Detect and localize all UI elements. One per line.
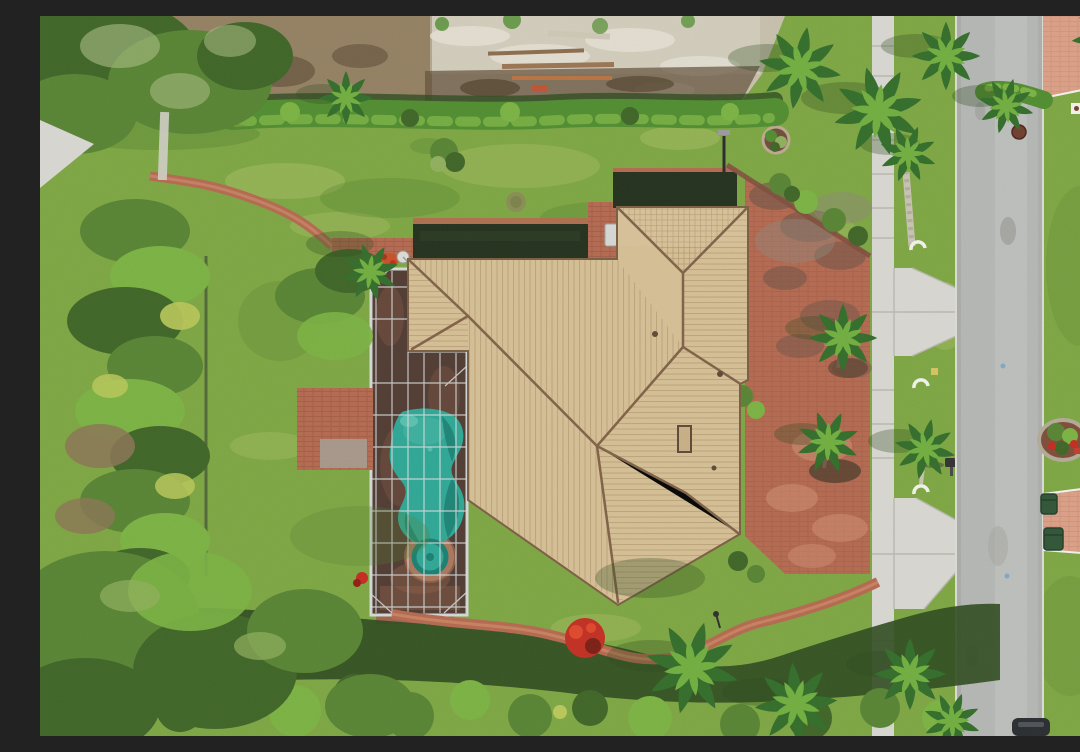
photo-grain: [40, 16, 1080, 736]
aerial-photo-canvas: [40, 16, 1080, 736]
aerial-photo: Aerial top-down drone photo of a single-…: [40, 16, 1080, 736]
